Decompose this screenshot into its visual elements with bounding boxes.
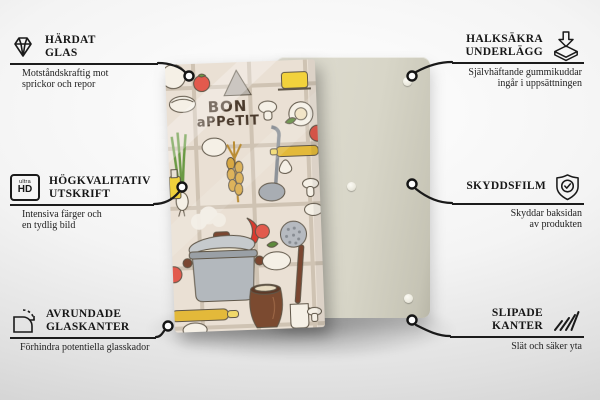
diamond-icon <box>10 35 36 59</box>
feature-title: HALKSÄKRA UNDERLÄGG <box>466 33 543 59</box>
ground-edge-icon <box>552 308 580 332</box>
feature-rounded-edges: AVRUNDADE GLASKANTER Förhindra potentiel… <box>10 304 160 354</box>
feature-description: Slät och säker yta <box>432 342 584 353</box>
rubber-pad-icon <box>404 294 413 303</box>
feature-title: HÖGKVALITATIV UTSKRIFT <box>49 175 151 201</box>
feature-high-quality-print: ultra HD HÖGKVALITATIV UTSKRIFT Intensiv… <box>10 171 160 231</box>
tomato-icon <box>166 266 183 283</box>
divider <box>452 203 584 205</box>
feature-title: AVRUNDADE GLASKANTER <box>46 308 130 334</box>
feature-title: SLIPADE KANTER <box>492 307 543 333</box>
divider <box>10 337 156 339</box>
feature-non-slip-pads: HALKSÄKRA UNDERLÄGG Självhäftande gummik… <box>432 29 584 89</box>
divider <box>452 62 584 64</box>
feature-ground-edges: SLIPADE KANTER Slät och säker yta <box>432 303 584 353</box>
glass-board-front-panel: BON aPPeTIT <box>165 59 325 333</box>
clay-pot-icon <box>249 284 283 328</box>
non-slip-pad-icon <box>552 30 580 62</box>
tomato-icon <box>255 224 270 239</box>
feature-description: Självhäftande gummikuddar ingår i uppsät… <box>432 68 584 89</box>
rubber-pad-icon <box>403 77 412 86</box>
feature-title: SKYDDSFILM <box>466 180 546 193</box>
divider <box>10 204 154 206</box>
shield-check-icon <box>555 173 580 201</box>
feature-description: Motståndskraftig mot sprickor och repor <box>10 69 160 90</box>
divider <box>450 336 584 338</box>
feature-description: Intensiva färger och en tydlig bild <box>10 210 160 231</box>
divider <box>10 63 158 65</box>
feature-title: HÄRDAT GLAS <box>45 34 96 60</box>
butter-dish-icon <box>277 71 311 89</box>
feature-description: Förhindra potentiella glasskador <box>10 343 160 354</box>
feature-protective-film: SKYDDSFILM Skyddar baksidan av produkten <box>432 170 584 230</box>
dumpling-icon <box>202 138 227 157</box>
ultra-hd-icon: ultra HD <box>10 174 40 201</box>
rounded-corner-icon <box>10 307 37 334</box>
rubber-pad-icon <box>347 182 356 191</box>
feature-tempered-glass: HÄRDAT GLAS Motståndskraftig mot spricko… <box>10 30 160 90</box>
kitchen-illustration: BON aPPeTIT <box>165 59 325 333</box>
feature-description: Skyddar baksidan av produkten <box>432 209 584 230</box>
